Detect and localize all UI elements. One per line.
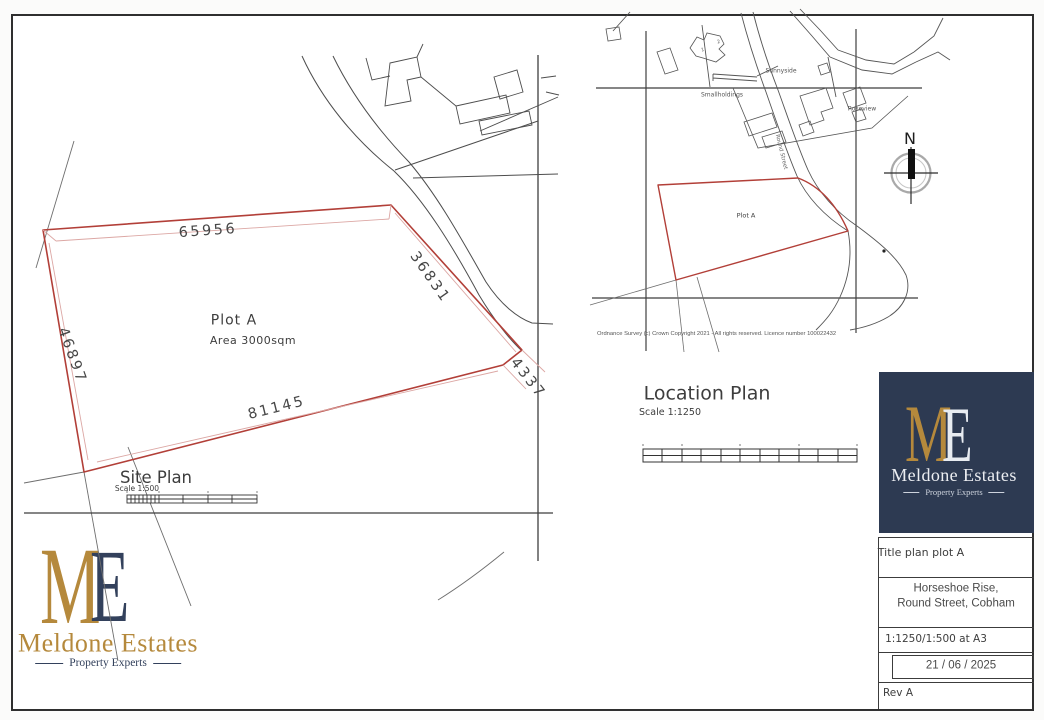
watermark-monogram-e: E: [90, 535, 129, 639]
card-brand-name: Meldone Estates: [891, 466, 1016, 486]
site-plot-label: Plot A: [211, 313, 257, 328]
titleblock-divider: [878, 682, 1034, 683]
location-copyright-note: Ordnance Survey (c) Crown Copyright 2021…: [597, 331, 836, 337]
card-tagline-text: Property Experts: [925, 487, 982, 497]
card-brand-tagline: Property Experts: [903, 487, 1004, 497]
location-place-smallholdings: Smallholdings: [701, 93, 743, 100]
tagline-dash: [989, 492, 1005, 493]
titleblock-border-left: [878, 537, 879, 709]
north-label: N: [904, 130, 916, 148]
titleblock-date: 21 / 06 / 2025: [926, 660, 996, 673]
watermark-tagline-text: Property Experts: [69, 657, 147, 669]
watermark-brand-name: Meldone Estates: [18, 630, 198, 659]
titleblock-scale: 1:1250/1:500 at A3: [885, 634, 987, 646]
titleblock-divider: [878, 652, 1034, 653]
watermark-brand-tagline: Property Experts: [35, 657, 181, 669]
site-plan-scale-label: Scale 1:500: [115, 485, 159, 493]
titleblock-title: Title plan plot A: [878, 547, 964, 559]
titleblock-divider: [878, 577, 1034, 578]
tagline-dash: [35, 663, 63, 664]
card-monogram-e: E: [942, 396, 973, 474]
location-plan-scale-label: Scale 1:1250: [639, 408, 701, 418]
titleblock-divider: [878, 627, 1034, 628]
location-place-sunnyside: Sunnyside: [765, 69, 796, 76]
titleblock-revision: Rev A: [883, 688, 913, 700]
tagline-dash: [153, 663, 181, 664]
titleblock-address-line1: Horseshoe Rise,: [913, 583, 998, 596]
location-plot-label: Plot A: [737, 212, 756, 219]
location-place-roseview: Roseview: [848, 107, 876, 114]
location-plan-title: Location Plan: [644, 384, 771, 405]
titleblock-address-line2: Round Street, Cobham: [897, 598, 1015, 611]
site-plot-area-label: Area 3000sqm: [210, 335, 296, 347]
title-plan-document: M E Meldone Estates Property Experts M E…: [0, 0, 1044, 720]
titleblock-border-top: [878, 537, 1034, 538]
tagline-dash: [903, 492, 919, 493]
